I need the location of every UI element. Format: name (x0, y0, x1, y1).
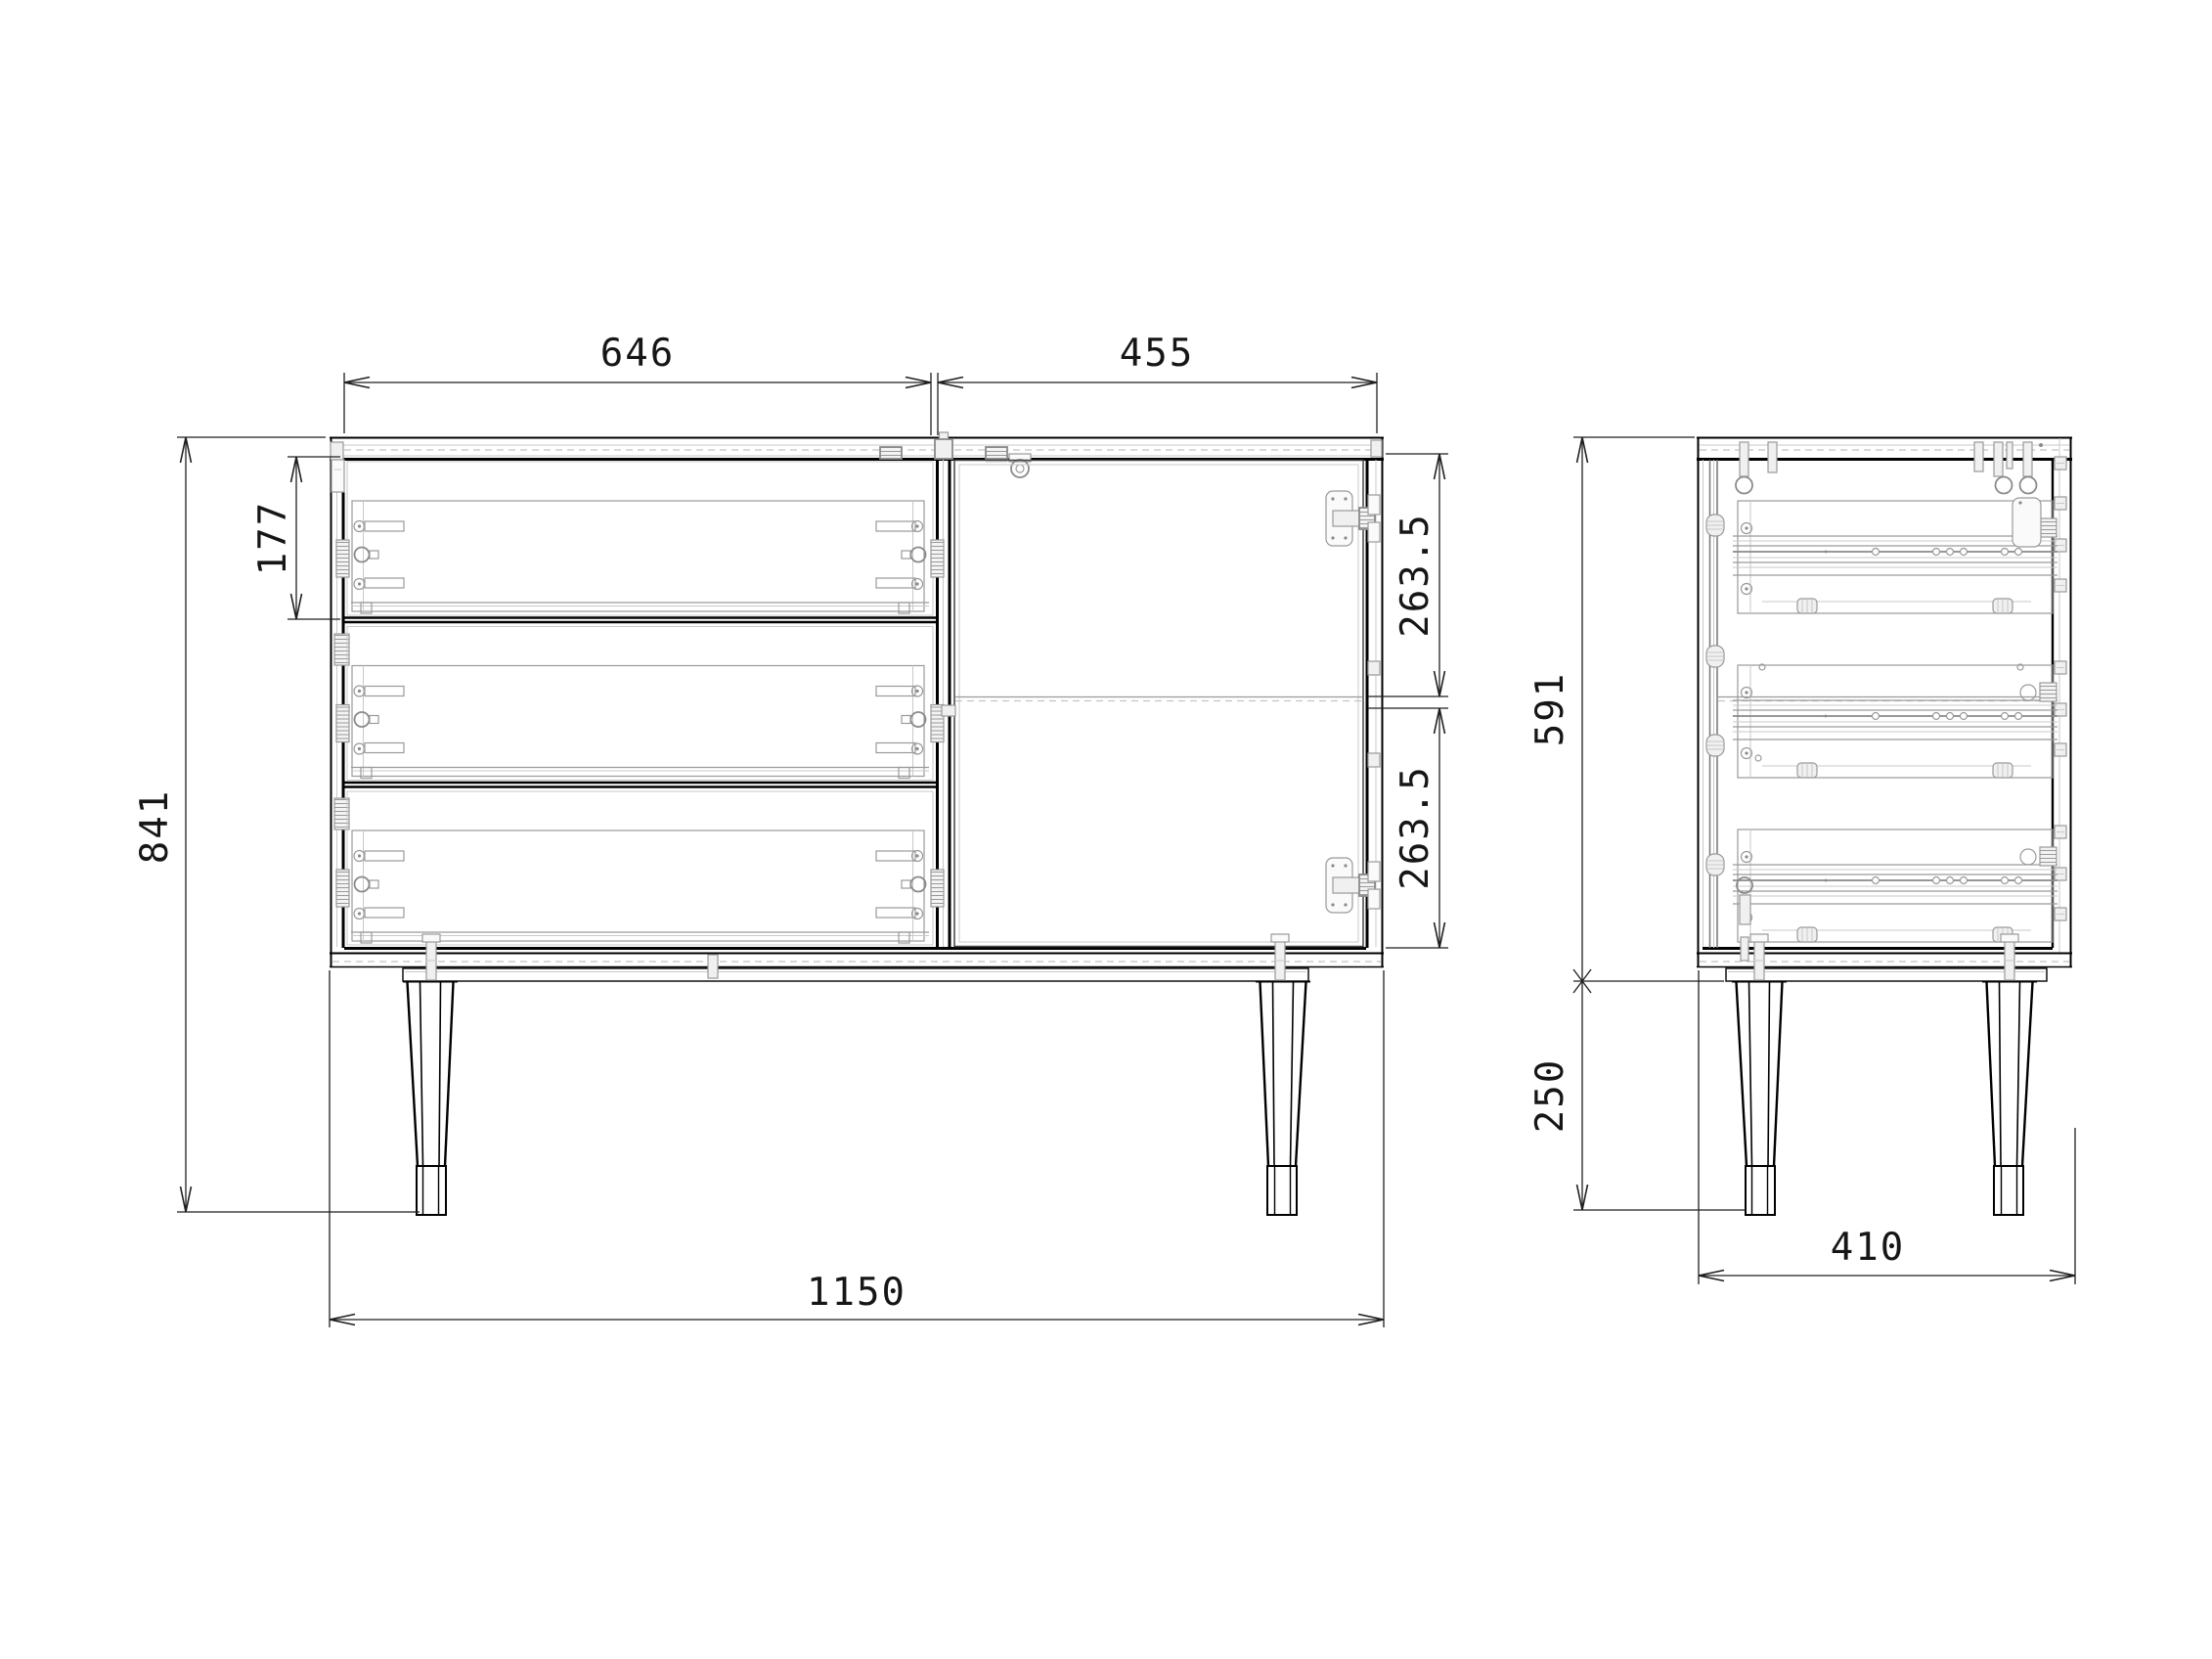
door-top-pivot (1011, 460, 1029, 477)
door-hinge-bottom (1326, 858, 1380, 913)
sv-apron (1726, 968, 2047, 981)
dim-label-410: 410 (1831, 1226, 1905, 1270)
dim-carcass-height: 591 (1528, 437, 1724, 993)
dim-door-lower-section: 263.5 (1368, 708, 1448, 948)
dim-label-263-5-lower: 263.5 (1394, 765, 1438, 889)
dim-leg-height: 250 (1528, 981, 1746, 1210)
dim-label-263-5-upper: 263.5 (1394, 513, 1438, 637)
door-hinge-top (1326, 491, 1380, 546)
dim-label-177: 177 (251, 501, 295, 575)
shelf-pin (942, 705, 955, 716)
sv-leg-back (1982, 982, 2037, 1216)
dim-label-1150: 1150 (807, 1271, 907, 1315)
dim-drawer-opening-width: 646 (344, 332, 931, 435)
top-knurl-fitting-right (986, 447, 1007, 459)
drawing-sheet: 646 455 177 841 263.5 (0, 0, 2212, 1659)
dim-overall-width: 1150 (330, 970, 1384, 1327)
dim-label-455: 455 (1120, 332, 1194, 376)
fv-carcass (330, 437, 1384, 981)
cabinet-technical-drawing: 646 455 177 841 263.5 (0, 0, 2212, 1659)
dim-door-opening-width: 455 (938, 332, 1377, 435)
fv-leg-left (403, 982, 458, 1216)
dim-door-upper-section: 263.5 (1368, 454, 1448, 696)
dim-label-646: 646 (600, 332, 675, 376)
corner-cam-right (1371, 440, 1382, 457)
fv-drawer-1 (336, 462, 944, 615)
sv-drawer-1 (1733, 498, 2057, 613)
dim-label-250: 250 (1528, 1058, 1572, 1133)
fv-apron (403, 968, 1308, 981)
sv-leg-front (1732, 982, 1787, 1216)
apron-dowel (708, 955, 718, 978)
side-view (1697, 437, 2072, 1215)
fv-door (942, 461, 1380, 947)
dim-label-841: 841 (133, 789, 177, 864)
dim-label-591: 591 (1528, 672, 1572, 746)
divider-top-cap (935, 439, 952, 459)
fv-leg-right (1256, 982, 1310, 1216)
fv-left-wall-fittings (332, 460, 349, 829)
sv-door-edge (1706, 460, 1724, 948)
sv-drawer-2 (1733, 664, 2057, 778)
fv-top-fittings (331, 432, 1382, 477)
front-view (330, 432, 1384, 1215)
top-knurl-fitting-left (880, 447, 902, 459)
dim-top-drawer-height: 177 (251, 457, 340, 619)
fv-drawer-3 (336, 791, 944, 945)
fv-drawer-2 (336, 627, 944, 781)
